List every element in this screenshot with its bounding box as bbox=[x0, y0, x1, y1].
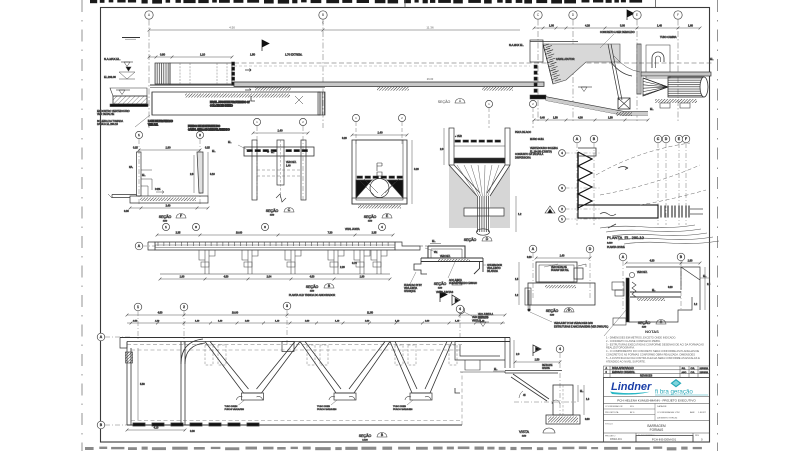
svg-text:1: 1 bbox=[137, 305, 139, 309]
svg-text:EL.: EL. bbox=[580, 391, 584, 393]
svg-text:1:100: 1:100 bbox=[607, 243, 613, 245]
svg-text:REALIZOTOPOGRAFIA.: REALIZOTOPOGRAFIA. bbox=[606, 346, 635, 350]
svg-text:2 - CONCRETO CLASSE COMPLEXO 2: 2 - CONCRETO CLASSE COMPLEXO 25MPA. bbox=[606, 339, 661, 343]
svg-text:4.50: 4.50 bbox=[310, 276, 315, 279]
svg-text:FORMAS: FORMAS bbox=[650, 428, 664, 432]
svg-text:1.50: 1.50 bbox=[535, 359, 540, 362]
svg-text:DATA/RIF: DATA/RIF bbox=[657, 405, 667, 408]
svg-text:EL.: EL. bbox=[142, 174, 146, 177]
svg-text:EL.293.00: EL.293.00 bbox=[104, 75, 116, 79]
svg-text:4: 4 bbox=[559, 347, 561, 351]
svg-text:4.50: 4.50 bbox=[229, 26, 235, 30]
svg-text:1.40: 1.40 bbox=[560, 255, 565, 258]
svg-text:1.70 EXTREM.: 1.70 EXTREM. bbox=[285, 53, 303, 57]
svg-text:1:100: 1:100 bbox=[362, 440, 368, 442]
svg-text:VIDA JUNTO: VIDA JUNTO bbox=[487, 267, 501, 270]
svg-text:0.60: 0.60 bbox=[585, 419, 590, 421]
svg-text:ATENDIDO AO NIVEL SUPORTE.: ATENDIDO AO NIVEL SUPORTE. bbox=[606, 359, 646, 363]
svg-text:5.50: 5.50 bbox=[140, 383, 145, 386]
svg-text:1.50: 1.50 bbox=[250, 53, 256, 57]
svg-text:2: 2 bbox=[183, 305, 185, 309]
svg-text:F: F bbox=[180, 214, 182, 218]
svg-text:0.20: 0.20 bbox=[527, 257, 532, 259]
svg-text:0.80: 0.80 bbox=[160, 53, 166, 57]
svg-text:PCH-INS-DEM-001: PCH-INS-DEM-001 bbox=[652, 438, 677, 442]
svg-text:7.30: 7.30 bbox=[328, 232, 333, 235]
svg-text:fi bra geração: fi bra geração bbox=[655, 389, 693, 396]
svg-text:0.20: 0.20 bbox=[668, 287, 673, 289]
svg-text:1:80/NT: 1:80/NT bbox=[698, 412, 706, 414]
svg-text:1.90: 1.90 bbox=[360, 276, 365, 279]
svg-text:F: F bbox=[677, 13, 679, 17]
svg-text:DILATADA: DILATADA bbox=[487, 270, 498, 273]
svg-text:G: G bbox=[456, 281, 459, 285]
svg-text:● VER: ● VER bbox=[455, 135, 462, 138]
svg-text:2.35: 2.35 bbox=[372, 232, 377, 235]
svg-text:EL.: EL. bbox=[494, 369, 498, 371]
svg-text:1.60: 1.60 bbox=[688, 260, 693, 263]
svg-text:SEÇÃO: SEÇÃO bbox=[438, 99, 451, 104]
svg-text:11.50: 11.50 bbox=[367, 312, 374, 315]
svg-text:0.30: 0.30 bbox=[124, 210, 129, 213]
svg-text:TUBO CAMISA: TUBO CAMISA bbox=[660, 36, 677, 39]
svg-text:4.30: 4.30 bbox=[578, 117, 583, 120]
svg-text:2.35: 2.35 bbox=[176, 232, 181, 235]
svg-text:2.04: 2.04 bbox=[267, 276, 272, 279]
svg-text:SEÇÃO: SEÇÃO bbox=[266, 208, 279, 213]
svg-text:E: E bbox=[678, 137, 680, 141]
svg-text:FUROS VARIAVEIS: FUROS VARIAVEIS bbox=[393, 408, 413, 411]
svg-text:4: 4 bbox=[459, 307, 461, 311]
svg-text:NIVEL JUSANTE PROTEGIDO C/: NIVEL JUSANTE PROTEGIDO C/ bbox=[210, 100, 250, 104]
svg-text:3: 3 bbox=[286, 304, 288, 308]
svg-text:1.40: 1.40 bbox=[377, 131, 383, 135]
svg-text:0.30: 0.30 bbox=[190, 430, 195, 433]
svg-text:10.60: 10.60 bbox=[236, 232, 243, 235]
svg-text:i=2%: i=2% bbox=[155, 188, 161, 191]
svg-text:N.A.MAX EL.: N.A.MAX EL. bbox=[509, 44, 524, 47]
svg-text:1.10: 1.10 bbox=[200, 53, 206, 57]
svg-text:CHARQUE: CHARQUE bbox=[404, 290, 416, 293]
svg-text:3 - ESTRUTURAS EXECUTADAS CONF: 3 - ESTRUTURAS EXECUTADAS CONFORME DESEN… bbox=[606, 342, 704, 346]
svg-text:VER DET.: VER DET. bbox=[440, 256, 451, 258]
svg-text:AT.S: AT.S bbox=[630, 411, 635, 414]
svg-text:3.00: 3.00 bbox=[620, 25, 625, 28]
svg-text:(DESENHO TERCE): (DESENHO TERCE) bbox=[657, 418, 678, 420]
svg-text:EL.: EL. bbox=[212, 150, 216, 153]
svg-text:SEÇÃO: SEÇÃO bbox=[434, 281, 447, 286]
svg-text:COORDENADAS UTM: COORDENADAS UTM bbox=[657, 411, 680, 414]
svg-text:ESTRUTURAS E ANCORAGENS (VER D: ESTRUTURAS E ANCORAGENS (VER DWG.PD.) bbox=[554, 326, 609, 329]
svg-text:SEÇÃO: SEÇÃO bbox=[546, 308, 559, 313]
svg-text:CONCRETO E AS FORMAS CONFORME: CONCRETO E AS FORMAS CONFORME OBRA REALI… bbox=[606, 353, 695, 357]
svg-text:CANAL SERA ABC/REGULARIZADO: CANAL SERA ABC/REGULARIZADO bbox=[188, 129, 230, 132]
svg-text:VER DETALHE: VER DETALHE bbox=[551, 266, 567, 269]
svg-text:NA.: NA. bbox=[129, 166, 133, 169]
svg-text:26.00: 26.00 bbox=[427, 77, 434, 81]
svg-text:SEÇÃO: SEÇÃO bbox=[364, 214, 377, 219]
svg-text:FUGAS VER P.E.: FUGAS VER P.E. bbox=[551, 269, 569, 272]
svg-text:2.40: 2.40 bbox=[166, 205, 171, 208]
svg-text:NV.: NV. bbox=[434, 252, 438, 254]
svg-text:EL.: EL. bbox=[432, 240, 436, 243]
svg-text:SEÇÃO: SEÇÃO bbox=[464, 237, 477, 242]
svg-text:FURACAO P/ BV: FURACAO P/ BV bbox=[404, 284, 422, 287]
svg-text:Lindner: Lindner bbox=[611, 381, 652, 393]
svg-text:PLANTA CHAVE: PLANTA CHAVE bbox=[607, 246, 625, 249]
svg-text:0.25: 0.25 bbox=[133, 147, 138, 150]
svg-text:NOTAS: NOTAS bbox=[645, 329, 659, 334]
svg-text:B: B bbox=[100, 423, 102, 427]
svg-text:FUROS VARIAVEIS: FUROS VARIAVEIS bbox=[225, 408, 245, 411]
svg-text:0.25: 0.25 bbox=[205, 147, 210, 150]
svg-text:1.90: 1.90 bbox=[165, 146, 171, 150]
svg-text:VITAL JUNTA: VITAL JUNTA bbox=[345, 228, 360, 231]
svg-text:1.40: 1.40 bbox=[277, 129, 283, 133]
svg-text:PROJETISTA: PROJETISTA bbox=[605, 411, 619, 414]
svg-text:TUBO DREN: TUBO DREN bbox=[317, 406, 330, 408]
svg-text:COLCHOES RENO: COLCHOES RENO bbox=[210, 104, 233, 108]
svg-text:MURO GUIA: MURO GUIA bbox=[530, 138, 544, 141]
svg-text:PLANTA OLD TRINCA DO ANCORADOR: PLANTA OLD TRINCA DO ANCORADOR bbox=[289, 294, 336, 297]
svg-text:VER DET.: VER DET. bbox=[637, 272, 648, 274]
svg-text:EL.294.50 (CRISTA): EL.294.50 (CRISTA) bbox=[530, 151, 552, 154]
svg-text:SEÇÃO: SEÇÃO bbox=[306, 284, 319, 289]
svg-text:5 - A JUSTIFICACAO DA CONTRA F: 5 - A JUSTIFICACAO DA CONTRA FLECHA SERA… bbox=[606, 356, 700, 360]
svg-text:DISPERSORA: DISPERSORA bbox=[515, 157, 531, 160]
svg-text:ABR: ABR bbox=[690, 411, 695, 414]
svg-text:DETALHE: DETALHE bbox=[542, 364, 553, 367]
svg-text:2.20: 2.20 bbox=[340, 266, 345, 269]
svg-text:PARA APROVACAO: PARA APROVACAO bbox=[612, 367, 634, 370]
svg-text:EL.: EL. bbox=[703, 275, 707, 278]
svg-text:FIBRA-001: FIBRA-001 bbox=[610, 438, 622, 441]
svg-text:4 - O COMPRIMENTO DO CONCRETO: 4 - O COMPRIMENTO DO CONCRETO SERA CONFO… bbox=[606, 349, 699, 353]
svg-text:VER P.E.: VER P.E. bbox=[148, 124, 159, 127]
svg-text:1.40: 1.40 bbox=[657, 25, 662, 28]
svg-text:EL.: EL. bbox=[650, 108, 654, 111]
svg-text:4.10: 4.10 bbox=[154, 427, 159, 430]
svg-text:CONCRETO A SER DEMOLIDO: CONCRETO A SER DEMOLIDO bbox=[600, 31, 635, 34]
svg-text:CHAPA: CHAPA bbox=[542, 367, 550, 370]
svg-text:EL.: EL. bbox=[271, 152, 275, 154]
svg-text:N.A.MAX.EL.: N.A.MAX.EL. bbox=[104, 57, 121, 61]
svg-text:M.S: M.S bbox=[630, 406, 634, 408]
svg-text:FUROS VARIAVEIS: FUROS VARIAVEIS bbox=[317, 408, 337, 411]
svg-text:VER DET.: VER DET. bbox=[286, 162, 297, 164]
svg-text:AGO: AGO bbox=[682, 371, 687, 374]
svg-text:B: B bbox=[593, 137, 595, 141]
svg-text:B: B bbox=[680, 255, 682, 259]
svg-text:0.20: 0.20 bbox=[342, 137, 347, 140]
svg-text:10.90: 10.90 bbox=[232, 312, 239, 315]
svg-text:11.36: 11.36 bbox=[426, 26, 434, 30]
svg-text:1 - DIMENSOES EM METROS, EXCET: 1 - DIMENSOES EM METROS, EXCETO ONDE IND… bbox=[606, 336, 676, 340]
svg-text:4.30: 4.30 bbox=[650, 260, 655, 263]
svg-text:DAGUA EL.290.10: DAGUA EL.290.10 bbox=[97, 123, 118, 126]
svg-text:1.60: 1.60 bbox=[688, 25, 693, 28]
svg-text:0.70: 0.70 bbox=[352, 262, 357, 265]
svg-text:F: F bbox=[685, 137, 687, 141]
svg-text:4.20: 4.20 bbox=[585, 25, 590, 28]
svg-text:CHUMBADOR: CHUMBADOR bbox=[487, 264, 502, 267]
svg-text:VIDA JUNTA: VIDA JUNTA bbox=[404, 287, 418, 290]
svg-text:SEÇÃO: SEÇÃO bbox=[159, 214, 172, 219]
svg-text:SEÇÃO: SEÇÃO bbox=[638, 320, 651, 325]
svg-text:REV: REV bbox=[695, 435, 700, 437]
svg-text:4.50: 4.50 bbox=[158, 312, 163, 315]
svg-text:PCH HELENA KUMLEHMANN - PROJET: PCH HELENA KUMLEHMANN - PROJETO EXECUTIV… bbox=[617, 398, 696, 402]
svg-text:1.50: 1.50 bbox=[608, 117, 613, 120]
svg-text:1.90: 1.90 bbox=[180, 276, 185, 279]
svg-text:TITULO: TITULO bbox=[605, 424, 613, 426]
svg-text:VISTA JUNTAS: VISTA JUNTAS bbox=[436, 291, 453, 294]
svg-text:TUBO DREN: TUBO DREN bbox=[393, 406, 406, 408]
svg-text:EMISSAO ORIGINAL: EMISSAO ORIGINAL bbox=[612, 371, 636, 374]
svg-text:CANAL ADUTOR: CANAL ADUTOR bbox=[556, 58, 575, 61]
svg-text:1.00: 1.00 bbox=[549, 25, 554, 28]
svg-text:PECA DE ACO: PECA DE ACO bbox=[515, 131, 531, 134]
svg-text:22/09/24: 22/09/24 bbox=[700, 372, 709, 374]
svg-text:4.50: 4.50 bbox=[224, 276, 229, 279]
svg-text:3.20: 3.20 bbox=[414, 168, 419, 171]
svg-text:SEÇÃO: SEÇÃO bbox=[359, 433, 372, 438]
svg-text:1.40: 1.40 bbox=[286, 166, 291, 168]
svg-text:0.40: 0.40 bbox=[540, 117, 545, 120]
svg-text:1.50: 1.50 bbox=[553, 117, 558, 120]
svg-text:COORDENADOR: COORDENADOR bbox=[605, 405, 623, 408]
svg-text:PLANTA EL. 290.10: PLANTA EL. 290.10 bbox=[607, 235, 645, 240]
svg-text:TUBO DREN: TUBO DREN bbox=[225, 406, 238, 408]
svg-text:LIMITE B: LIMITE B bbox=[478, 317, 488, 320]
svg-text:EL.: EL. bbox=[710, 58, 714, 61]
svg-text:VER DETALHE: VER DETALHE bbox=[97, 113, 115, 116]
svg-text:10/08/24: 10/08/24 bbox=[700, 368, 709, 370]
svg-text:VISTA: VISTA bbox=[519, 430, 530, 434]
svg-text:EL.: EL. bbox=[228, 141, 232, 144]
svg-text:3.10: 3.10 bbox=[210, 173, 215, 176]
